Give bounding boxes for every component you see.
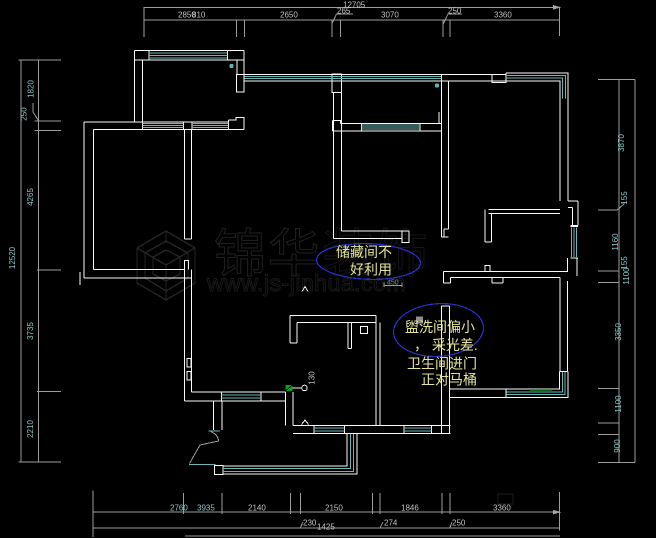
svg-text:900: 900 xyxy=(613,439,622,453)
svg-text:12520: 12520 xyxy=(8,246,17,269)
svg-text:1160: 1160 xyxy=(611,233,620,251)
svg-text:810: 810 xyxy=(192,11,206,20)
svg-text:3360: 3360 xyxy=(494,11,512,20)
svg-text:3350: 3350 xyxy=(614,323,623,341)
svg-text:正对马桶: 正对马桶 xyxy=(421,372,477,388)
svg-text:155: 155 xyxy=(620,191,629,205)
svg-text:2760: 2760 xyxy=(170,504,188,513)
svg-text:130: 130 xyxy=(308,371,317,385)
svg-text:3735: 3735 xyxy=(26,322,35,340)
svg-text:2650: 2650 xyxy=(280,11,298,20)
svg-text:2150: 2150 xyxy=(325,504,343,513)
svg-text:储藏间不: 储藏间不 xyxy=(336,244,392,260)
svg-text:2210: 2210 xyxy=(26,420,35,438)
svg-text:1100: 1100 xyxy=(622,267,631,285)
svg-text:265: 265 xyxy=(337,7,351,16)
svg-text:3360: 3360 xyxy=(493,504,511,513)
svg-text:230: 230 xyxy=(303,519,317,528)
svg-text:250: 250 xyxy=(448,7,462,16)
svg-text:274: 274 xyxy=(384,519,398,528)
svg-text:3935: 3935 xyxy=(197,504,215,513)
svg-text:， 采光差.: ， 采光差. xyxy=(414,337,478,353)
svg-text:250: 250 xyxy=(20,107,29,121)
svg-text:1846: 1846 xyxy=(401,504,419,513)
svg-text:1100: 1100 xyxy=(614,395,623,413)
svg-text:3870: 3870 xyxy=(617,134,626,152)
svg-text:1425: 1425 xyxy=(317,523,335,532)
svg-text:盥洗间偏小: 盥洗间偏小 xyxy=(405,319,475,335)
svg-text:1820: 1820 xyxy=(27,80,36,98)
svg-text:2140: 2140 xyxy=(248,504,266,513)
svg-text:250: 250 xyxy=(452,519,466,528)
svg-text:好利用: 好利用 xyxy=(350,262,392,278)
svg-text:3070: 3070 xyxy=(381,11,399,20)
svg-text:卫生间进门: 卫生间进门 xyxy=(407,356,477,372)
svg-text:4265: 4265 xyxy=(26,188,35,206)
